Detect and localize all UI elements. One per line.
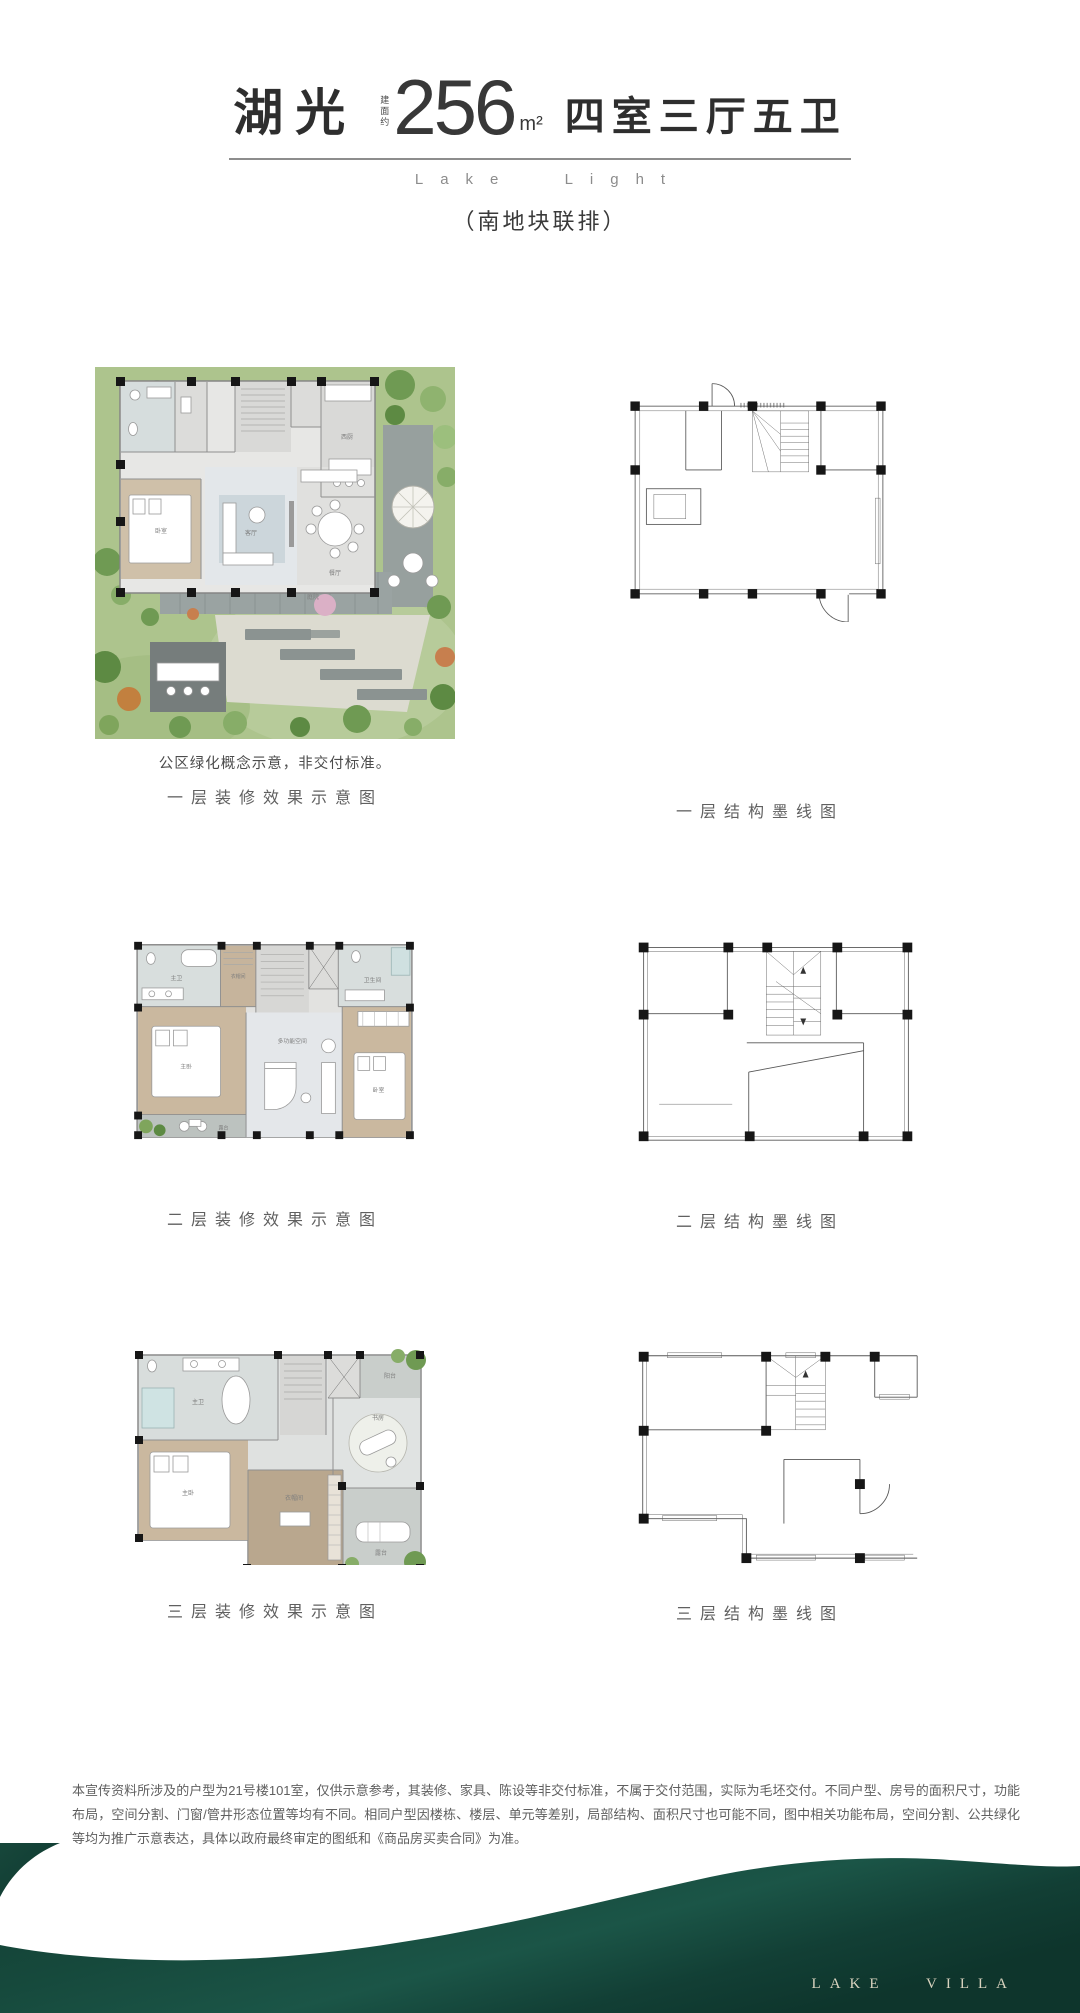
window-marks [662, 1353, 909, 1560]
label-kitchen: 西厨 [341, 434, 353, 441]
stair [752, 411, 808, 472]
outdoor-bar [150, 642, 226, 712]
interior-walls [643, 1356, 917, 1524]
disclaimer-text: 本宣传资料所涉及的户型为21号楼101室，仅供示意参考，其装修、家具、陈设等非交… [72, 1779, 1020, 1851]
brand-logotype: LAKE VILLA [812, 1976, 1016, 1993]
label-dining: 餐厅 [329, 569, 341, 577]
label-balcony: 阳台 [384, 1372, 396, 1380]
area-group: 建面约 256 m² [379, 76, 542, 138]
area-label: 建面约 [379, 95, 388, 128]
caption-floor2-right: 二层结构墨线图 [560, 1208, 960, 1232]
wave-corner-accent [0, 1843, 60, 1897]
label-master-bedroom: 主卧 [182, 1489, 194, 1497]
page-title: 湖光 [233, 88, 357, 138]
label-bath: 卫生间 [364, 976, 382, 984]
greenery-note: 公区绿化概念示意，非交付标准。 [95, 752, 455, 773]
caption-floor1-right: 一层结构墨线图 [560, 798, 960, 822]
label-living: 客厅 [245, 529, 257, 537]
tagline: （南地块联排） [0, 204, 1080, 236]
outer-walls [644, 947, 909, 1140]
outer-walls [635, 406, 883, 594]
floor3-decorated-plan: 主卫 主卧 衣帽间 书房 露台 阳台 [128, 1340, 428, 1565]
interior-walls [648, 951, 905, 1136]
floor2-decorated-plan: 主卫 衣帽间 卫生间 主卧 多功能空间 卧室 露台 [127, 933, 422, 1144]
house-floor1 [120, 381, 375, 593]
label-cloakroom: 衣帽间 [285, 1494, 303, 1502]
label-bedroom: 卧室 [155, 527, 167, 535]
header: 湖光 建面约 256 m² 四室三厅五卫 Lake Light （南地块联排） [0, 76, 1080, 236]
label-master-bath: 主卫 [192, 1398, 204, 1406]
caption-floor2-left: 二层装修效果示意图 [75, 1206, 475, 1230]
poster-page: 湖光 建面约 256 m² 四室三厅五卫 Lake Light （南地块联排） [0, 0, 1080, 2013]
interior-walls [646, 411, 880, 564]
floor3-structural-plan [626, 1336, 926, 1568]
stair-arrow-down [800, 1019, 806, 1026]
divider-rule [229, 158, 851, 160]
label-master-bath: 主卫 [170, 974, 182, 982]
floor1-structural-plan [618, 378, 900, 622]
label-garden: 庭院 [307, 593, 319, 601]
outer-walls [643, 1356, 917, 1558]
subtitle-en: Lake Light [0, 171, 1080, 188]
stair [766, 951, 821, 1035]
caption-floor3-left: 三层装修效果示意图 [75, 1598, 475, 1622]
columns [630, 401, 885, 598]
label-study: 书房 [372, 1414, 384, 1422]
floor1-decorated-plan: 卧室 客厅 餐厅 西厨 庭院 [95, 367, 455, 739]
caption-floor3-right: 三层结构墨线图 [560, 1600, 960, 1624]
caption-floor1-left: 一层装修效果示意图 [75, 784, 475, 808]
area-unit: m² [519, 113, 542, 136]
room-spec: 四室三厅五卫 [565, 96, 847, 138]
title-row: 湖光 建面约 256 m² 四室三厅五卫 [0, 76, 1080, 138]
house-floor2 [137, 945, 412, 1137]
label-multi: 多功能空间 [277, 1037, 307, 1045]
columns [639, 943, 913, 1142]
label-terrace: 露台 [375, 1549, 387, 1557]
columns [639, 1352, 880, 1563]
label-cloakroom: 衣帽间 [231, 973, 246, 980]
floor2-structural-plan [630, 928, 922, 1147]
label-master-bedroom: 主卧 [180, 1062, 192, 1070]
label-terrace: 露台 [219, 1124, 229, 1131]
house-floor3 [138, 1349, 426, 1565]
area-value: 256 [393, 76, 514, 138]
stair [766, 1356, 825, 1430]
label-bedroom2: 卧室 [373, 1086, 385, 1094]
footer-wave: LAKE VILLA [0, 1843, 1080, 2013]
